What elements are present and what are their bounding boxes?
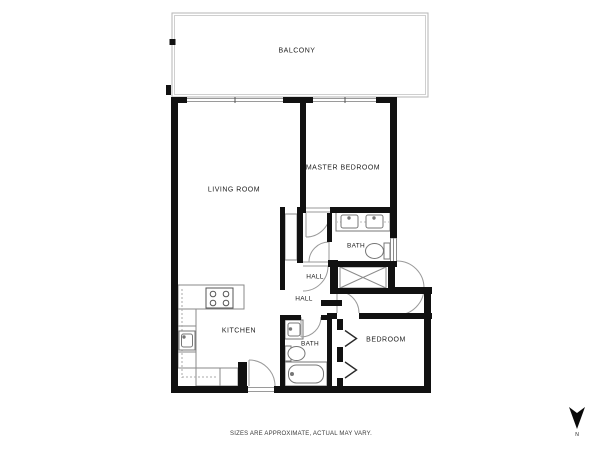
floor-plan-drawing bbox=[0, 0, 600, 450]
wall-lr-mbr-divider bbox=[300, 97, 306, 213]
bathtub-icon bbox=[285, 362, 327, 386]
door-arc-master-bedroom bbox=[306, 213, 330, 237]
entry-sidelite bbox=[391, 238, 397, 262]
wall-hall-stub bbox=[321, 300, 342, 306]
label-hall-upper: HALL bbox=[306, 274, 323, 281]
wall-strip-left bbox=[280, 207, 285, 290]
door-arc-bath bbox=[301, 317, 321, 337]
door-arc-master-bath bbox=[309, 242, 329, 262]
north-label: N bbox=[575, 432, 579, 438]
bath-vanity-icon bbox=[285, 320, 303, 339]
label-kitchen: KITCHEN bbox=[222, 328, 256, 335]
wall-left bbox=[171, 97, 178, 393]
balcony-post-top-left bbox=[166, 85, 171, 95]
wall-bedroom-west-seg3 bbox=[337, 378, 343, 386]
hall-closet bbox=[285, 214, 297, 260]
label-bath: BATH bbox=[301, 341, 319, 348]
wall-bedroom-top-seg1 bbox=[327, 313, 337, 319]
wall-entry-header bbox=[392, 287, 432, 294]
door-arc-kitchen bbox=[249, 360, 275, 386]
wall-mbr-bottom bbox=[330, 207, 397, 213]
wardrobe-x-closet bbox=[340, 267, 386, 288]
wall-bath-left bbox=[280, 315, 285, 386]
bath-toilet-icon bbox=[285, 346, 305, 361]
wall-bottom-left bbox=[171, 386, 248, 393]
disclaimer-text: SIZES ARE APPROXIMATE, ACTUAL MAY VARY. bbox=[230, 431, 372, 437]
wall-mbath-left bbox=[327, 213, 332, 242]
wall-kitchen-door-stub bbox=[238, 362, 247, 386]
label-balcony: BALCONY bbox=[279, 48, 316, 55]
wall-right-upper bbox=[390, 97, 397, 238]
kitchen-sink-icon bbox=[179, 331, 195, 350]
north-arrow-icon bbox=[569, 407, 585, 429]
balcony-rail-break bbox=[170, 39, 176, 45]
stove-icon bbox=[206, 288, 233, 308]
label-hall-lower: HALL bbox=[295, 296, 312, 303]
wall-bottom-right bbox=[274, 386, 431, 393]
label-master-bedroom: MASTER BEDROOM bbox=[306, 165, 380, 172]
balcony-railing bbox=[172, 13, 428, 97]
master-vanity-icon bbox=[336, 212, 390, 231]
wall-top-seg1 bbox=[171, 97, 187, 103]
wall-bath-right bbox=[327, 315, 332, 386]
wall-bedroom-west-seg2 bbox=[337, 347, 343, 362]
label-living-room: LIVING ROOM bbox=[208, 187, 260, 194]
wall-xcloset-right bbox=[388, 262, 395, 288]
wall-corridor-left bbox=[297, 207, 303, 263]
wall-bedroom-top-seg2 bbox=[359, 313, 432, 319]
bifold-closet-doors bbox=[345, 331, 357, 379]
window-band bbox=[187, 97, 376, 103]
door-swings bbox=[249, 213, 424, 386]
label-master-bath: BATH bbox=[347, 243, 365, 250]
floor-plan-page: BALCONY LIVING ROOM MASTER BEDROOM BATH … bbox=[0, 0, 600, 450]
wall-xcloset-bottom bbox=[332, 288, 397, 294]
wall-bath-top-seg1 bbox=[280, 315, 301, 320]
wall-right-lower bbox=[424, 294, 431, 393]
wall-bedroom-west-seg1 bbox=[337, 319, 343, 330]
wall-top-seg2 bbox=[283, 97, 313, 103]
master-toilet-icon bbox=[366, 243, 391, 259]
label-bedroom: BEDROOM bbox=[366, 337, 406, 344]
